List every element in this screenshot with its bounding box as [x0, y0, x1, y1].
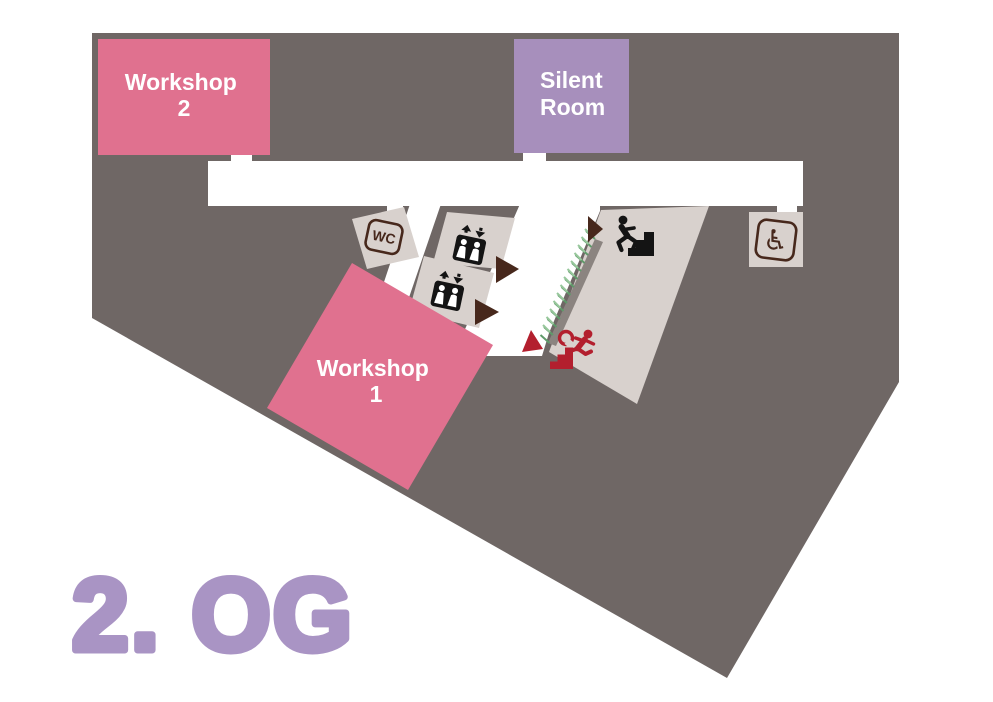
floor-label: 2. OG	[72, 558, 354, 672]
silent-room-label: Silent Room	[540, 67, 609, 120]
main-corridor	[208, 161, 803, 206]
silent-room-door	[523, 152, 546, 164]
floor-plan-page: WC	[0, 0, 993, 702]
floor-plan-map: WC	[0, 0, 993, 702]
workshop-2-door	[231, 154, 252, 164]
wheelchair-glyph: ♿	[761, 223, 790, 259]
